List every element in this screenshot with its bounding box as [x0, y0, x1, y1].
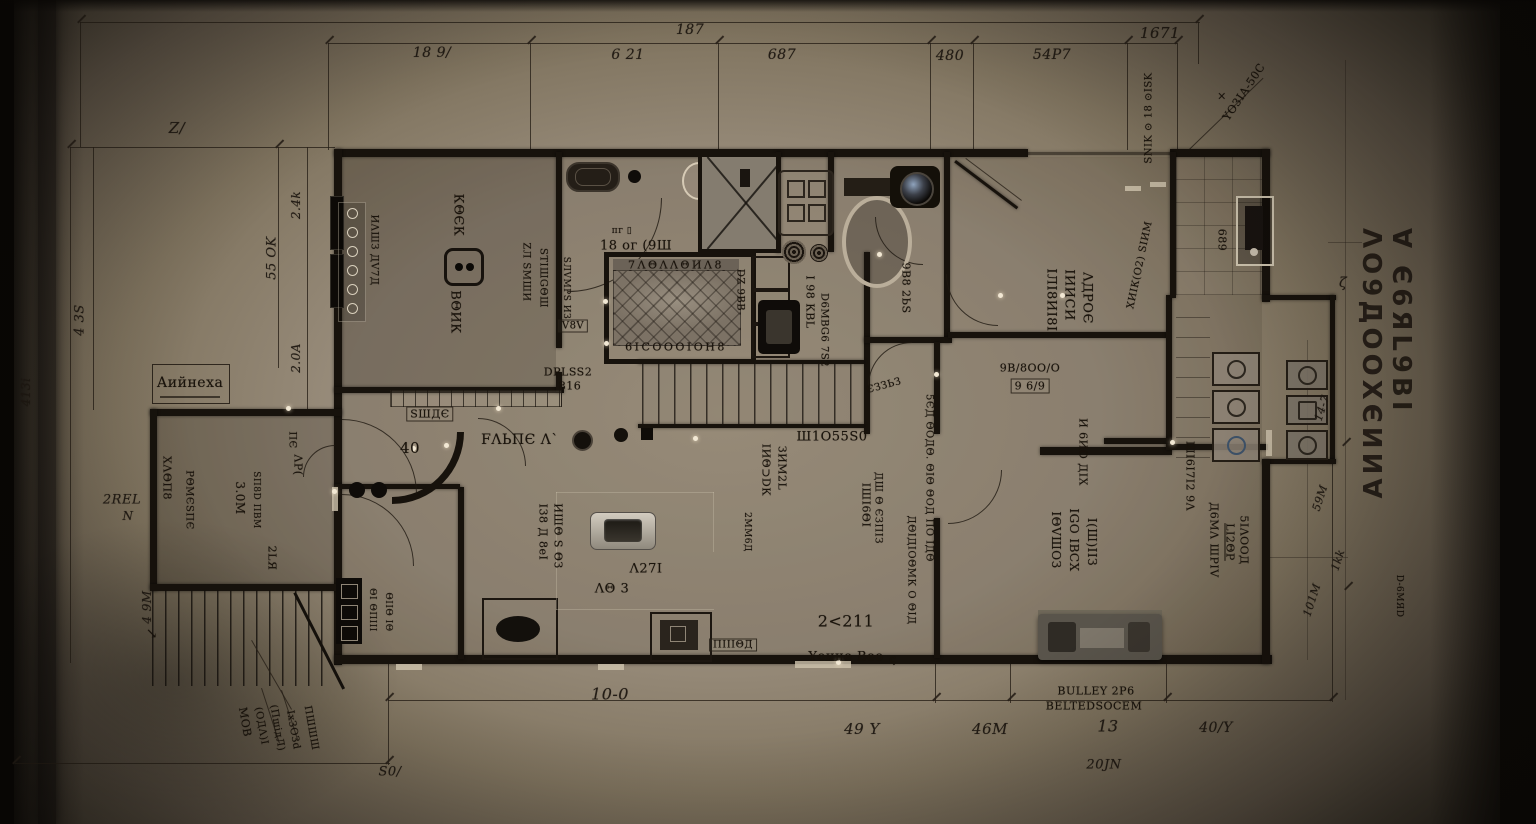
sheet-title-vertical: ∀ Є6ЯL9ВI ΛО9ДООХЄИИ∀ — [1356, 228, 1416, 502]
wall-spine — [934, 342, 940, 434]
ext-line — [973, 43, 974, 150]
schedule-ring — [347, 284, 358, 295]
dim-right-zeta-label: ζ — [1339, 275, 1347, 291]
hall-note-b-label: SТIШGΘШ — [538, 248, 549, 308]
room1-name-a-label: КΘЄК — [451, 194, 466, 237]
spiral-fixture — [810, 244, 828, 262]
wall-bump-top — [1262, 295, 1336, 300]
console-shelf — [1080, 628, 1124, 648]
highlight-dot — [496, 406, 501, 411]
wc-note-label: 9В8 2ЬS — [900, 262, 913, 313]
hall2-sigma-label: ς — [890, 653, 897, 666]
entry-note-b-label: ИШΘ S ΘЗ — [552, 503, 565, 569]
dim-left-z-label: Z/ — [169, 119, 185, 137]
dim-line-top-overall — [80, 22, 1200, 23]
door-sill — [1125, 186, 1141, 191]
hall2-area-label: 2<211 — [818, 612, 875, 631]
highlight-dot — [877, 252, 882, 257]
dim-line-bottom-left — [15, 763, 390, 764]
note-belted-label: BELTEDSOCEM — [1046, 700, 1142, 713]
dim-top-2-label: 6 21 — [611, 47, 644, 63]
dim-right-2-label: 59M — [1310, 483, 1331, 512]
builtin-console — [1038, 614, 1162, 660]
hall2-tag-label: ПIIIΘД — [709, 639, 757, 652]
entry-knob — [572, 430, 593, 451]
hall2-note-c-label: 2ММ6Д — [742, 512, 752, 552]
hall-note-a-label: ZЛ SМШИ — [521, 242, 532, 301]
closet-shelf-strip — [390, 390, 562, 407]
floor-plan-photo: ∀ Є6ЯL9ВI ΛО9ДООХЄИИ∀ 187167118 9/6 2168… — [0, 0, 1536, 824]
annex-wall-left — [150, 409, 157, 591]
door-sill — [1266, 430, 1272, 456]
highlight-dot — [1170, 440, 1175, 445]
knob-ring — [1227, 398, 1246, 417]
dim-left-1-label: 4 3S — [73, 304, 88, 336]
counter-line — [556, 492, 714, 493]
dim-left-4-label: 2.0A — [289, 343, 303, 373]
dim-top-overall-label: 187 — [676, 22, 704, 38]
counter-line — [556, 609, 714, 610]
washer-door — [900, 172, 934, 206]
sheet-note-label: D-6МЯD — [1394, 575, 1404, 618]
shower-stall — [698, 153, 780, 253]
wall-top-porch — [1170, 149, 1270, 157]
tv-cabinet — [758, 300, 800, 354]
dim-bottom-4-label: 20JN — [1086, 758, 1121, 773]
vestibule-knob — [349, 482, 365, 498]
highlight-dot — [693, 436, 698, 441]
hall2-note-d-label: IШI6ΘI — [860, 483, 873, 528]
entry-square — [641, 428, 653, 440]
wall-int — [948, 332, 1168, 338]
highlight-dot — [286, 406, 291, 411]
dim-bottom-overall-label: 10-0 — [591, 685, 629, 704]
wall-top — [334, 149, 1028, 157]
knob-ring — [1298, 436, 1317, 455]
entry-note-a-label: I38 Д 8еI — [537, 504, 550, 561]
room-br-name-2-label: IGО IВСХ — [1067, 508, 1081, 571]
room-br-name-1-label: IΘVШОЗ — [1049, 511, 1063, 568]
appliance-column-a — [1212, 352, 1260, 464]
hall2-note-b-label: ЗИМ2L — [776, 446, 789, 491]
dim-bottom-2-label: 46M — [972, 720, 1008, 738]
annex-area-label: 3.0М — [233, 481, 247, 514]
ext-line — [530, 43, 531, 150]
corridor-note-b-label: I 98 КВL — [804, 275, 817, 328]
spiral-fixture — [782, 240, 806, 264]
annex-underline — [160, 396, 220, 398]
nightstand-cell — [752, 256, 790, 290]
stair-rail — [638, 424, 864, 428]
wall-bump-right — [1330, 295, 1335, 463]
garage-note-a-label: ΘI ΘПIII — [367, 588, 377, 632]
room-br-note-1-label: Д6МΛ ШРIV — [1208, 502, 1221, 577]
wall-int — [1040, 447, 1172, 455]
vestibule-knob — [371, 482, 387, 498]
leader-note-tr-label: YO3IA-50C — [1220, 61, 1268, 123]
counter-line — [713, 492, 714, 552]
spine-note-a-label: 5ЄД ΘОДΘ. ΘIΘ ΘОД ПО IДΘ — [924, 394, 935, 562]
console-bay — [1128, 622, 1150, 652]
dim-bottom-1-label: 49 Y — [844, 720, 880, 738]
annex-note-2-label: РΘМЄSПЄ — [184, 470, 195, 530]
dim-top-1-label: 18 9/ — [413, 45, 451, 61]
console-bay — [1048, 622, 1076, 652]
dim-left-8-label: 4 9M — [140, 590, 154, 623]
window-schedule-strip — [338, 202, 366, 322]
bath-fixture-tag-label: пг ▯ — [612, 226, 633, 236]
niche-knob — [1250, 248, 1258, 256]
dim-line-top — [328, 43, 1177, 44]
bed-mattress — [613, 270, 741, 346]
annex-label-label: Аийнеха — [157, 375, 224, 391]
outlet-symbol — [444, 248, 484, 286]
bed-head-text-label: 7ΛΘΛΛΘИΛ8 — [628, 259, 724, 272]
bath-name-label: 18 ог (9Ш — [600, 239, 672, 254]
outlet-dot — [466, 263, 474, 271]
burner-square — [808, 180, 826, 198]
porch-niche — [1236, 196, 1274, 266]
annex-note-3-label: SП8D ПВМ — [251, 471, 261, 529]
kitchen-counter-lines — [1176, 300, 1210, 458]
door-sill — [396, 664, 422, 670]
entry-tag-label: SШДЄ — [406, 407, 453, 422]
cabinet-square — [670, 626, 686, 642]
room-tr-note2-label: И 6ИО ДIХ — [1077, 418, 1090, 486]
entry-num-label: 40 — [400, 439, 420, 457]
room-tr-name-3-label: ΛДРОЄ — [1080, 272, 1095, 324]
dim-line-left-top — [70, 147, 335, 148]
hall2-name-label: Yоине Вео — [808, 650, 883, 665]
annex-note-1-label: ХΛΘП8 — [161, 456, 174, 500]
schedule-ring — [347, 265, 358, 276]
ext-line — [1127, 43, 1128, 150]
ext-line — [80, 22, 81, 147]
garage-tag-a-label: Λ27I — [629, 562, 662, 577]
bathtub — [566, 162, 620, 192]
entry-name-label: FΛЬПЄ Λ` — [481, 432, 559, 448]
wall-int — [1166, 295, 1172, 447]
margin-note-tr-label: SNIK ⊙ 18 ⊙ISK — [1144, 72, 1155, 163]
ext-line — [1332, 462, 1333, 702]
appliance-cell — [1212, 390, 1260, 424]
cabinet — [650, 612, 712, 662]
hall-note-d-label: DPLSS2 — [544, 366, 592, 379]
entry-knob — [614, 428, 628, 442]
niche-inner — [1245, 206, 1263, 250]
dim-top-4-label: 480 — [936, 48, 964, 64]
hall2-note-e-label: ДШ Θ ЄЗПIЗ — [873, 472, 884, 544]
garage-panel — [336, 578, 362, 644]
dim-top-right-overall-label: 1671 — [1140, 24, 1180, 42]
washer-unit — [890, 166, 940, 208]
burner-square — [787, 180, 805, 198]
ext-line — [718, 43, 719, 150]
room-br-note-3-label: 5IΛООД — [1238, 515, 1251, 564]
highlight-dot — [604, 341, 609, 346]
stove-top — [778, 170, 834, 236]
room-tr-tag-b-label: 9 6/9 — [1011, 379, 1050, 394]
room-tr-name-1-label: IЛI8ИI8I — [1044, 268, 1059, 331]
north-arrow-label: ↘ — [146, 626, 158, 642]
garage-tag-b-label: ΛΘ 3 — [595, 582, 629, 597]
burner-square — [808, 204, 826, 222]
metal-plate-inset — [604, 519, 642, 542]
ext-line — [93, 147, 94, 410]
room-tr-tag-a-label: 9В/8ОО/О — [1000, 362, 1061, 375]
highlight-dot — [332, 489, 337, 494]
panel-square — [341, 626, 358, 641]
ext-line — [930, 43, 931, 150]
garage-note-b-label: ΘIIΘ IΘ — [383, 592, 393, 631]
porch-tag-label: 689 — [1216, 229, 1229, 252]
highlight-dot — [998, 293, 1003, 298]
hall-tag-label: V8V — [558, 320, 588, 333]
dim-top-5-label: 54P7 — [1033, 47, 1071, 63]
metal-plate — [590, 512, 656, 550]
cabinet-basin — [496, 616, 540, 642]
dim-left-3-label: 55 OK — [265, 236, 280, 280]
room-br-name-3-label: I(Ш)IIЗ — [1085, 518, 1099, 566]
stair-name-label: Ш1О55S0 — [797, 430, 868, 445]
panel-square — [341, 584, 358, 599]
annex-note-4-label: ПЄ — [287, 431, 298, 448]
dim-bottom-5-label: 40/Y — [1199, 720, 1233, 736]
annex-note-5-label: ΛР( — [292, 454, 305, 475]
annex-wall-top — [150, 409, 342, 416]
right-shade-band — [1430, 0, 1500, 824]
stairs-exterior — [152, 590, 334, 686]
outlet-dot — [455, 263, 463, 271]
note-bulley-label: BULLEY 2P6 — [1057, 685, 1134, 698]
ext-line — [388, 663, 389, 765]
appliance-cell — [1286, 360, 1328, 390]
schedule-ring — [347, 208, 358, 219]
ext-line — [1177, 43, 1178, 150]
burner-square — [787, 204, 805, 222]
dim-line-right-margin — [1345, 60, 1346, 700]
bathtub-inner — [575, 168, 611, 186]
corridor-note-c-label: D6МВG6 7S2 — [819, 293, 830, 367]
wall-int — [458, 487, 464, 659]
corridor-note-a-label: DZ 9ВВ — [735, 269, 746, 311]
room1-schedule-note-label: ИΛШЗ ДV7Д — [369, 214, 380, 285]
wall-stub — [1104, 438, 1168, 444]
knob-ring — [1227, 360, 1246, 379]
ext-line — [307, 147, 308, 409]
dim-left-6-label: N — [123, 509, 134, 523]
tv-screen — [766, 310, 792, 344]
appliance-cell — [1212, 352, 1260, 386]
shower-handle — [740, 169, 750, 187]
door-sill — [1150, 182, 1166, 187]
dim-top-3-label: 687 — [768, 47, 796, 63]
hall-note-c-label: SЛVМРS ИЗ — [561, 257, 571, 319]
knob-ring — [1298, 366, 1317, 385]
ext-line — [1198, 22, 1199, 64]
hall2-note-a-label: IИΘ⊃DК — [760, 444, 773, 497]
dim-tick — [1329, 692, 1338, 701]
ext-line — [328, 43, 329, 150]
room-tr-name-2-label: IИИСИ — [1062, 269, 1077, 321]
appliance-cell — [1286, 430, 1328, 460]
schedule-ring — [347, 246, 358, 257]
cabinet — [482, 598, 558, 660]
highlight-dot — [934, 372, 939, 377]
right-sheet-edge — [1500, 0, 1536, 824]
faucet-knob — [628, 170, 641, 183]
wall-spine — [934, 518, 940, 658]
wall-int — [944, 152, 950, 342]
highlight-dot — [603, 299, 608, 304]
dim-left-2-label: 2.4k — [289, 191, 303, 219]
marker-x-label: × — [1217, 90, 1227, 103]
knob-ring — [1227, 436, 1246, 455]
hall-note-e-label: 816 — [559, 380, 582, 393]
wall-int — [1170, 152, 1176, 298]
schedule-ring — [347, 303, 358, 314]
door-sill — [598, 664, 624, 670]
annex-note-6-label: 2LЯ — [266, 546, 279, 571]
top-shade-band — [0, 0, 1536, 12]
room1-name-b-label: ВΘИК — [448, 290, 463, 334]
panel-square — [341, 605, 358, 620]
dim-left-7-label: 413i — [19, 378, 33, 407]
stairs-main — [642, 364, 862, 424]
dim-right-4-label: 101M — [1301, 582, 1324, 619]
dim-left-5-label: 2REL — [103, 493, 141, 508]
spine-note-b-label: ДΘIДIОΘМК О ΘIД — [906, 515, 917, 624]
dim-bottom-3-label: 13 — [1097, 717, 1118, 736]
dim-tick — [1342, 437, 1351, 446]
highlight-dot — [444, 443, 449, 448]
bed-foot-text-label: 6IСОООIОН8 — [625, 341, 727, 354]
wall-right-lower — [1262, 459, 1270, 664]
dim-line-left — [70, 147, 71, 663]
room-br-note-2-label: LI2ΘР — [1224, 523, 1237, 561]
dim-line-bottom — [388, 700, 1332, 701]
schedule-ring — [347, 227, 358, 238]
appliance-cell — [1212, 428, 1260, 462]
kitchen-name-label: ШI6I7I2 9Λ — [1184, 441, 1197, 511]
dim-bottom-s0-label: S0/ — [378, 765, 401, 780]
